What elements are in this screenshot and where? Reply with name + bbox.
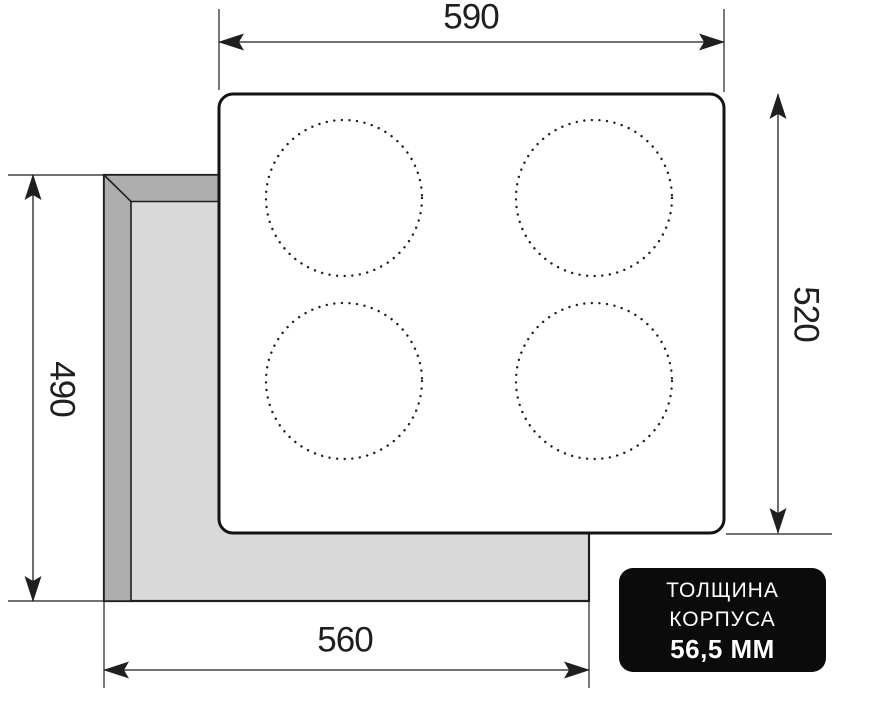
thickness-badge-value: 56,5 ММ (670, 634, 775, 665)
dimension-label-right: 520 (787, 286, 826, 342)
dimension-height-right: 520 (726, 94, 832, 534)
thickness-badge: ТОЛЩИНА КОРПУСА 56,5 ММ (619, 568, 826, 672)
dimension-width-bottom: 560 (104, 601, 589, 688)
installation-diagram: 490 590 520 560 (0, 0, 875, 711)
thickness-badge-line2: КОРПУСА (669, 605, 775, 634)
thickness-badge-line1: ТОЛЩИНА (666, 576, 779, 605)
dimension-label-bottom: 560 (317, 621, 373, 660)
dimension-label-left: 490 (43, 361, 82, 417)
dimension-height-left: 490 (8, 175, 104, 601)
cooktop-panel (219, 94, 724, 533)
cooktop-panel-group (219, 94, 724, 533)
dimension-width-top: 590 (219, 0, 724, 92)
dimension-label-top: 590 (443, 0, 499, 37)
